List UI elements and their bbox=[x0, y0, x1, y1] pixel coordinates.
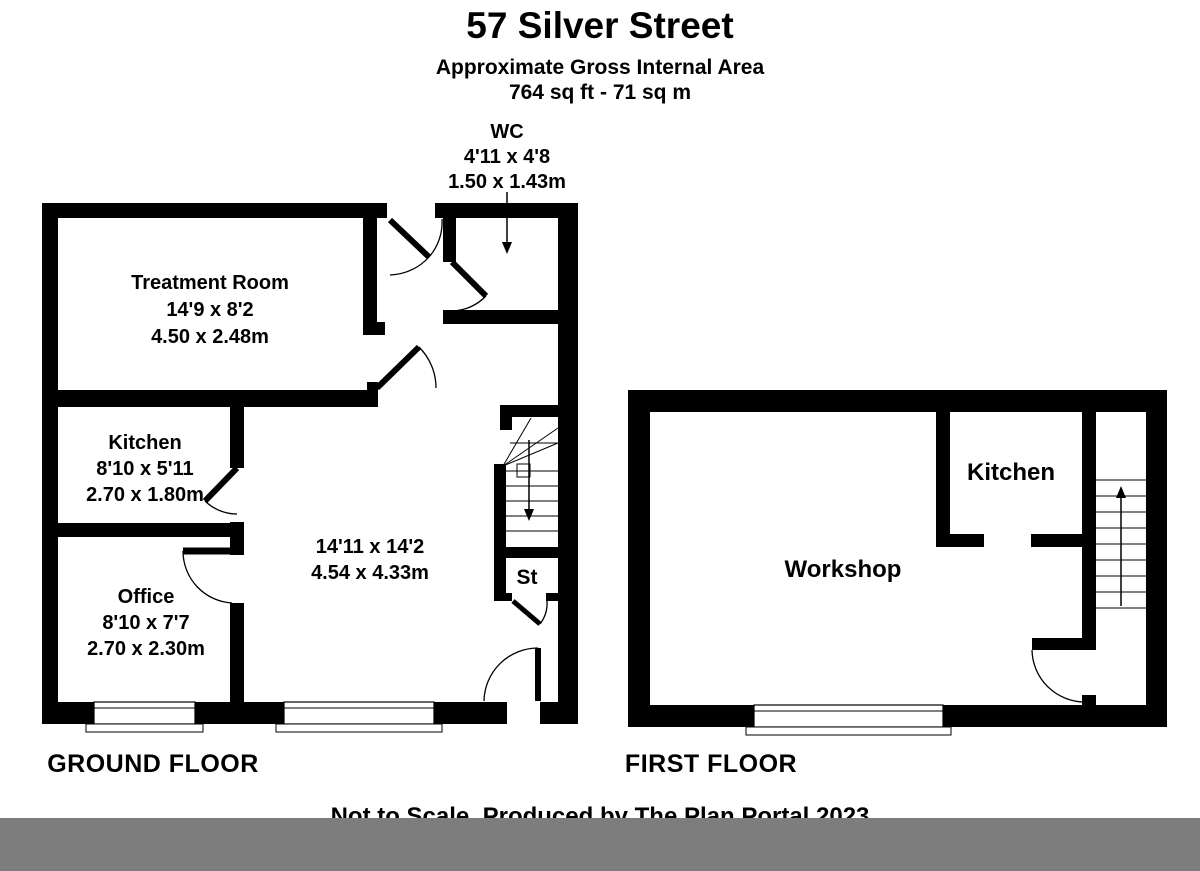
footer-bar bbox=[0, 818, 1200, 871]
room-size-imperial: 14'11 x 14'2 bbox=[250, 534, 490, 560]
wall bbox=[546, 593, 558, 601]
gf-main-room-label: 14'11 x 14'2 4.54 x 4.33m bbox=[250, 534, 490, 586]
first-floor-title: FIRST FLOOR bbox=[591, 750, 831, 778]
wall bbox=[443, 218, 456, 262]
wc-arrow-icon bbox=[502, 192, 512, 254]
room-name: Kitchen bbox=[25, 430, 265, 456]
room-name: Office bbox=[26, 584, 266, 610]
wc-room-label: WC 4'11 x 4'8 1.50 x 1.43m bbox=[407, 120, 607, 195]
wall bbox=[494, 593, 512, 601]
ff-stairs bbox=[1096, 480, 1146, 608]
ff-stairs-up-arrow-icon bbox=[1116, 486, 1126, 606]
page-area: 764 sq ft - 71 sq m bbox=[0, 80, 1200, 105]
gf-main-room-door bbox=[377, 347, 436, 388]
wall bbox=[363, 218, 377, 335]
ff-kitchen-label: Kitchen bbox=[911, 459, 1111, 487]
store-label: St bbox=[503, 566, 551, 590]
wall bbox=[1031, 534, 1082, 547]
room-size-metric: 4.50 x 2.48m bbox=[90, 324, 330, 351]
wall bbox=[195, 702, 284, 724]
wall bbox=[42, 203, 387, 218]
room-size-imperial: 4'11 x 4'8 bbox=[407, 145, 607, 170]
wall bbox=[42, 523, 244, 537]
gf-kitchen-label: Kitchen 8'10 x 5'11 2.70 x 1.80m bbox=[25, 430, 265, 508]
workshop-label: Workshop bbox=[723, 556, 963, 584]
wall bbox=[42, 390, 378, 407]
wall bbox=[1082, 695, 1096, 705]
wall bbox=[494, 547, 558, 558]
ground-floor-title: GROUND FLOOR bbox=[33, 750, 273, 778]
gf-front-door bbox=[484, 648, 538, 701]
wall bbox=[1082, 412, 1096, 650]
gf-window-main-room bbox=[276, 702, 442, 732]
wall bbox=[628, 390, 650, 727]
room-size-imperial: 8'10 x 5'11 bbox=[25, 456, 265, 482]
wall bbox=[628, 705, 754, 727]
office-label: Office 8'10 x 7'7 2.70 x 2.30m bbox=[26, 584, 266, 662]
wall bbox=[434, 702, 507, 724]
wall bbox=[936, 534, 984, 547]
floorplan-page: 57 Silver Street Approximate Gross Inter… bbox=[0, 0, 1200, 871]
gf-wc-door bbox=[452, 262, 486, 311]
page-title: 57 Silver Street bbox=[0, 6, 1200, 46]
wall bbox=[1146, 390, 1167, 727]
wall bbox=[1032, 638, 1082, 650]
page-subtitle: Approximate Gross Internal Area bbox=[0, 55, 1200, 80]
treatment-room-label: Treatment Room 14'9 x 8'2 4.50 x 2.48m bbox=[90, 270, 330, 351]
room-name: Treatment Room bbox=[90, 270, 330, 297]
room-size-metric: 4.54 x 4.33m bbox=[250, 560, 490, 586]
wall bbox=[500, 405, 512, 430]
wall bbox=[628, 390, 1167, 412]
ff-workshop-door bbox=[1032, 650, 1085, 702]
gf-stairs bbox=[502, 418, 558, 531]
room-size-metric: 2.70 x 2.30m bbox=[26, 636, 266, 662]
wall bbox=[363, 322, 385, 335]
wall bbox=[540, 702, 578, 724]
room-name: WC bbox=[407, 120, 607, 145]
gf-store-door bbox=[513, 601, 547, 624]
gf-window-office bbox=[86, 702, 203, 732]
ff-window-workshop bbox=[746, 705, 951, 735]
wall bbox=[42, 702, 94, 724]
wall bbox=[443, 310, 558, 324]
gf-stairs-down-arrow-icon bbox=[524, 440, 534, 521]
wall bbox=[943, 705, 1167, 727]
room-size-imperial: 8'10 x 7'7 bbox=[26, 610, 266, 636]
room-size-imperial: 14'9 x 8'2 bbox=[90, 297, 330, 324]
room-size-metric: 1.50 x 1.43m bbox=[407, 170, 607, 195]
gf-back-door bbox=[390, 219, 442, 257]
room-size-metric: 2.70 x 1.80m bbox=[25, 482, 265, 508]
gf-treatment-room-door bbox=[390, 257, 429, 275]
wall bbox=[558, 203, 578, 724]
